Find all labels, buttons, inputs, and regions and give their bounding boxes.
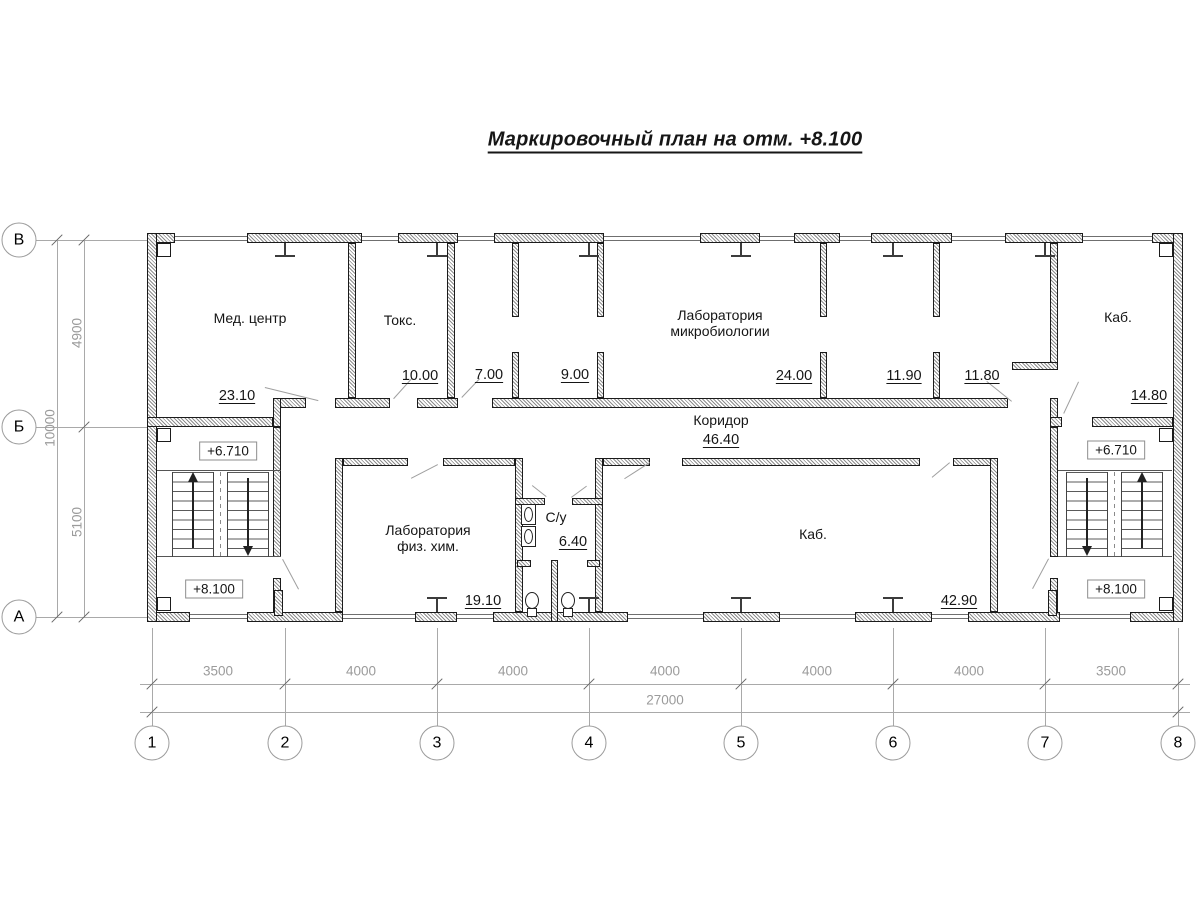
stair-down-arrow-icon xyxy=(243,546,253,556)
axis-bubble-col-2: 2 xyxy=(268,726,303,761)
wall-top-pier xyxy=(871,233,952,243)
door-leader xyxy=(411,464,438,479)
wall-corridor-bottom xyxy=(343,458,408,466)
wall-corridor-bottom xyxy=(443,458,515,466)
room-label-kab-small: Каб. xyxy=(1104,309,1132,325)
wall-right xyxy=(1173,233,1183,622)
corner-column xyxy=(1159,243,1173,257)
column-marker xyxy=(588,598,590,612)
sink-icon xyxy=(521,504,536,525)
wall-stair-right-top xyxy=(1050,417,1062,427)
room-label-fizhim-line1: Лаборатория xyxy=(385,522,470,538)
stair-up-arrow-icon xyxy=(1137,472,1147,482)
partition-stub xyxy=(512,352,519,398)
wall-stall-stub xyxy=(517,560,531,567)
area-label-corridor: 46.40 xyxy=(703,432,739,448)
room-label-microbio-line1: Лаборатория xyxy=(677,307,762,323)
column-marker xyxy=(883,255,903,257)
dim-label-4900: 4900 xyxy=(70,318,85,348)
wall-toks-r7 xyxy=(447,243,455,398)
area-label-fizhim: 19.10 xyxy=(465,593,501,609)
axis-bubble-row-v: В xyxy=(2,223,37,258)
dim-label-bottom-2: 4000 xyxy=(346,664,376,679)
level-mark-lower-right: +8.100 xyxy=(1087,580,1145,599)
wall-bottom-pier xyxy=(415,612,457,622)
wall-top-pier xyxy=(494,233,604,243)
dim-label-5100: 5100 xyxy=(70,507,85,537)
dim-line-bottom xyxy=(140,684,1190,685)
wall-stair-right-side xyxy=(1050,427,1058,557)
axis-bubble-col-6: 6 xyxy=(876,726,911,761)
wall-stair-left-side xyxy=(273,427,281,557)
stair-direction-line xyxy=(1141,480,1143,548)
door-leader xyxy=(1032,559,1049,589)
room-label-kab-large: Каб. xyxy=(799,526,827,542)
wall-stall-partition xyxy=(551,560,558,622)
stair-direction-line xyxy=(192,480,194,548)
wall-corridor-bottom xyxy=(682,458,920,466)
area-label-kab-large: 42.90 xyxy=(941,593,977,609)
area-label-r7: 7.00 xyxy=(475,367,503,383)
dim-line-left xyxy=(84,240,85,617)
corner-column xyxy=(1159,597,1173,611)
stair-direction-line xyxy=(247,478,249,546)
area-label-med-center: 23.10 xyxy=(219,388,255,404)
toilet-tank xyxy=(527,608,537,617)
stair-centerline xyxy=(220,472,221,557)
room-label-fizhim-line2: физ. хим. xyxy=(397,538,459,554)
door-leader xyxy=(532,485,547,497)
column-marker xyxy=(740,598,742,612)
stair-direction-line xyxy=(1086,478,1088,546)
door-leaf xyxy=(274,590,283,616)
wall-bottom-pier xyxy=(968,612,1060,622)
wall-top-pier xyxy=(700,233,760,243)
column-marker xyxy=(892,598,894,612)
axis-bubble-row-a: А xyxy=(2,600,37,635)
dim-label-bottom-7: 3500 xyxy=(1096,664,1126,679)
dim-label-bottom-6: 4000 xyxy=(954,664,984,679)
dim-line-bottom-total xyxy=(140,712,1190,713)
dim-label-bottom-4: 4000 xyxy=(650,664,680,679)
area-label-toks: 10.00 xyxy=(402,368,438,384)
level-mark-upper-left: +6.710 xyxy=(199,442,257,461)
corner-column xyxy=(157,597,171,611)
partition-stub xyxy=(820,352,827,398)
wall-corridor-top xyxy=(335,398,390,408)
sink-bowl xyxy=(524,507,533,522)
room-label-corridor: Коридор xyxy=(693,412,748,428)
axis-bubble-col-3: 3 xyxy=(420,726,455,761)
column-marker xyxy=(579,255,599,257)
toilet-icon xyxy=(559,592,578,620)
sink-icon xyxy=(521,526,536,547)
dim-label-bottom-3: 4000 xyxy=(498,664,528,679)
toilet-tank xyxy=(563,608,573,617)
area-label-r1180: 11.80 xyxy=(964,368,999,384)
wall-stall-stub xyxy=(587,560,600,567)
wall-top-pier xyxy=(398,233,458,243)
column-marker xyxy=(427,255,447,257)
dim-label-bottom-1: 3500 xyxy=(203,664,233,679)
door-leader xyxy=(1063,382,1079,414)
area-label-su: 6.40 xyxy=(559,534,587,550)
axis-bubble-col-4: 4 xyxy=(572,726,607,761)
partition-stub xyxy=(597,352,604,398)
area-label-microbio: 24.00 xyxy=(776,368,812,384)
drawing-title: Маркировочный план на отм. +8.100 xyxy=(488,129,863,152)
wall-kab-large-right xyxy=(990,458,998,612)
stair-edge xyxy=(157,470,281,471)
door-leaf xyxy=(1048,590,1057,616)
corner-column xyxy=(157,428,171,442)
corner-column xyxy=(1159,428,1173,442)
wall-corridor-top xyxy=(417,398,458,408)
wall-stair-left-top xyxy=(147,417,273,427)
partition-stub xyxy=(933,352,940,398)
partition-stub xyxy=(512,243,519,317)
door-leader xyxy=(282,559,299,589)
area-label-kab-small: 14.80 xyxy=(1131,388,1167,404)
room-label-toks: Токс. xyxy=(384,312,416,328)
sink-bowl xyxy=(524,529,533,544)
wall-corridor-top xyxy=(492,398,1008,408)
wall-bottom-pier xyxy=(703,612,780,622)
axis-bubble-col-8: 8 xyxy=(1161,726,1196,761)
wall-bottom-pier xyxy=(247,612,343,622)
stair-edge xyxy=(1058,470,1172,471)
room-label-microbio-line2: микробиологии xyxy=(670,323,769,339)
wall-kab-small-left xyxy=(1050,243,1058,370)
level-mark-lower-left: +8.100 xyxy=(185,580,243,599)
wall-su-right xyxy=(595,458,603,612)
wall-stair-right-top xyxy=(1092,417,1173,427)
floor-plan-drawing: Маркировочный план на отм. +8.100 xyxy=(0,0,1200,900)
column-marker xyxy=(1035,255,1055,257)
room-label-su: С/у xyxy=(546,509,567,525)
door-leader xyxy=(571,486,587,498)
toilet-icon xyxy=(523,592,542,620)
room-label-med-center: Мед. центр xyxy=(214,310,287,326)
wall-top-pier xyxy=(1005,233,1083,243)
dim-label-bottom-5: 4000 xyxy=(802,664,832,679)
wall-fizhim-left xyxy=(335,458,343,612)
wall-su-top xyxy=(572,498,603,505)
area-label-r1190: 11.90 xyxy=(886,368,921,384)
column-marker xyxy=(436,598,438,612)
toilet-bowl xyxy=(525,592,539,609)
wall-jog-1180 xyxy=(1012,362,1058,370)
wall-top-pier xyxy=(794,233,840,243)
door-leader xyxy=(932,462,950,477)
dim-label-27000: 27000 xyxy=(646,693,684,708)
axis-bubble-col-1: 1 xyxy=(135,726,170,761)
stair-centerline xyxy=(1114,472,1115,557)
column-marker xyxy=(731,255,751,257)
axis-bubble-col-5: 5 xyxy=(724,726,759,761)
wall-top-pier xyxy=(247,233,362,243)
partition-stub xyxy=(933,243,940,317)
wall-left xyxy=(147,233,157,622)
partition-stub xyxy=(820,243,827,317)
wall-med-toks xyxy=(348,243,356,398)
stair-down-arrow-icon xyxy=(1082,546,1092,556)
wall-bottom-pier xyxy=(855,612,932,622)
stair-up-arrow-icon xyxy=(188,472,198,482)
axis-bubble-col-7: 7 xyxy=(1028,726,1063,761)
axis-line-row xyxy=(36,617,147,618)
axis-bubble-row-b: Б xyxy=(2,410,37,445)
corner-column xyxy=(157,243,171,257)
axis-line-row xyxy=(36,240,147,241)
dim-label-10000: 10000 xyxy=(43,409,58,447)
area-label-r9: 9.00 xyxy=(561,367,589,383)
column-marker xyxy=(275,255,295,257)
wall-connector xyxy=(273,398,281,427)
level-mark-upper-right: +6.710 xyxy=(1087,441,1145,460)
toilet-bowl xyxy=(561,592,575,609)
